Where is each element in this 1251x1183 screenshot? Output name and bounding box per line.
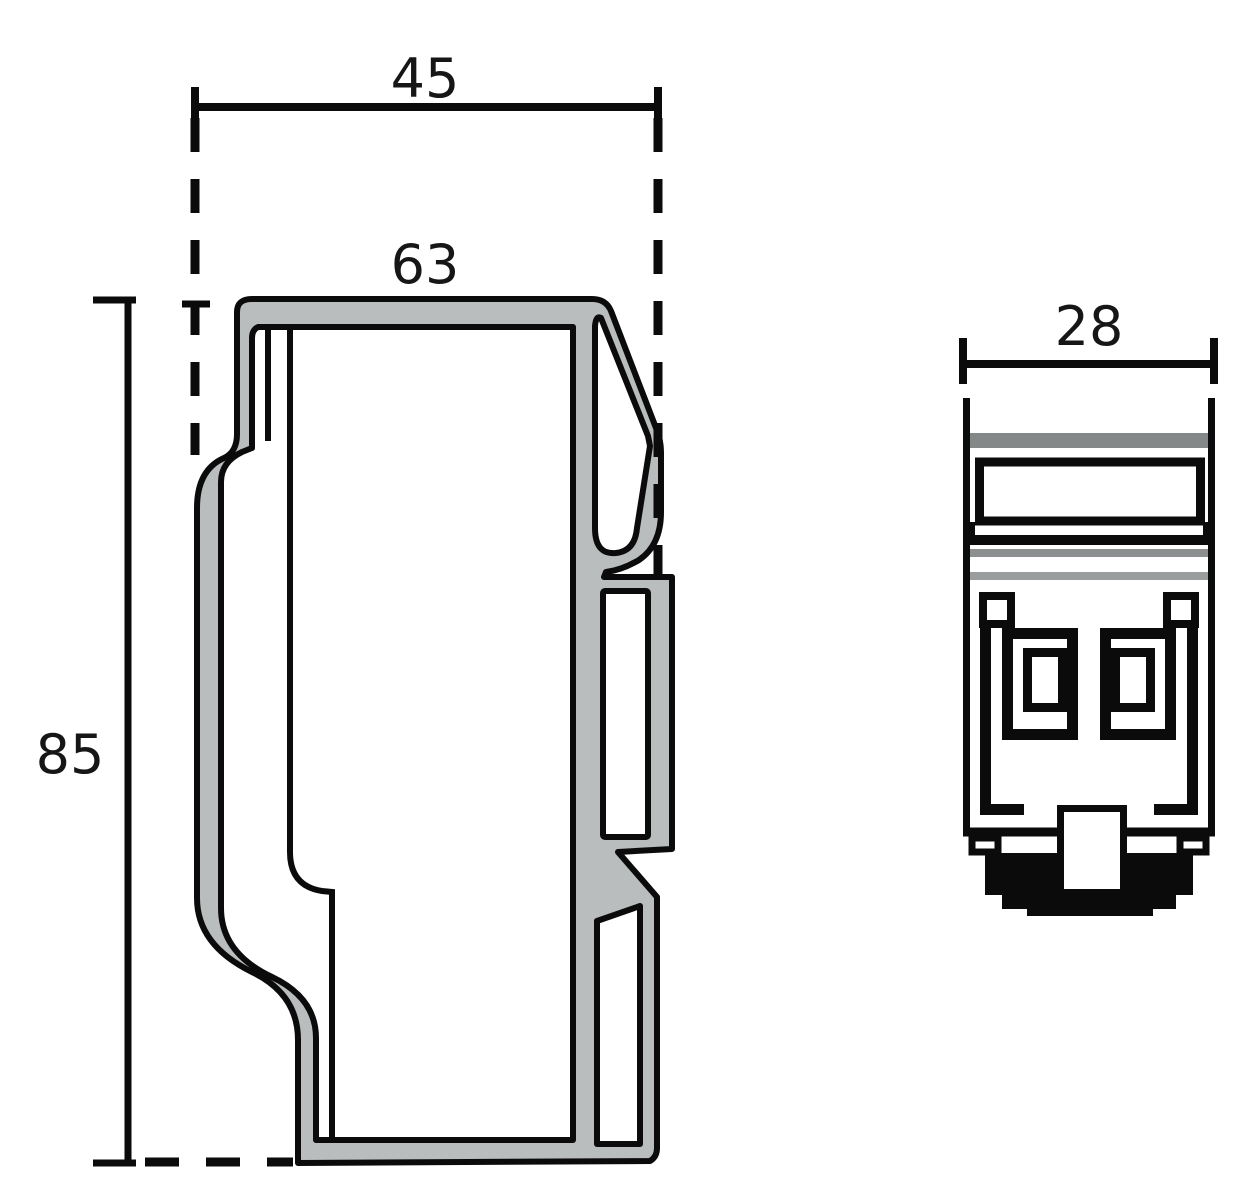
endview-band-mid [970, 549, 1208, 557]
dimension-45: 45 [195, 47, 658, 127]
endview-stem [1061, 809, 1124, 893]
profile-slot-lower [597, 906, 640, 1144]
endview-band-dark [970, 433, 1208, 448]
endview-foot-right [1180, 838, 1206, 852]
left-profile-figure: 45 63 85 [36, 47, 672, 1163]
endview-clip-square-left [983, 596, 1011, 624]
dim-28-label: 28 [1055, 295, 1124, 358]
endview-hookbar-right [1187, 624, 1198, 812]
endview-hookbar-left [980, 624, 991, 812]
endview-eye-right-inner [1116, 653, 1151, 708]
profile-cavity-main [221, 327, 573, 1140]
technical-drawing-canvas: 45 63 85 28 [0, 0, 1251, 1183]
drawing-svg: 45 63 85 28 [0, 0, 1251, 1183]
dimension-85: 85 [36, 300, 210, 1163]
profile-slot-upper [603, 591, 648, 837]
endview-upper-box [980, 462, 1201, 521]
right-endview-figure: 28 [962, 295, 1216, 916]
dim-85-label: 85 [36, 723, 105, 786]
dim-63-label: 63 [391, 233, 460, 296]
endview-eye-left-inner [1028, 653, 1063, 708]
dim-45-label: 45 [391, 47, 460, 110]
endview-hookfoot-right [1154, 804, 1198, 815]
endview-clip-square-right [1167, 596, 1195, 624]
endview-hookfoot-left [980, 804, 1024, 815]
endview-foot-left [972, 838, 998, 852]
dimension-28: 28 [962, 295, 1216, 384]
endview-band-light [970, 572, 1208, 580]
